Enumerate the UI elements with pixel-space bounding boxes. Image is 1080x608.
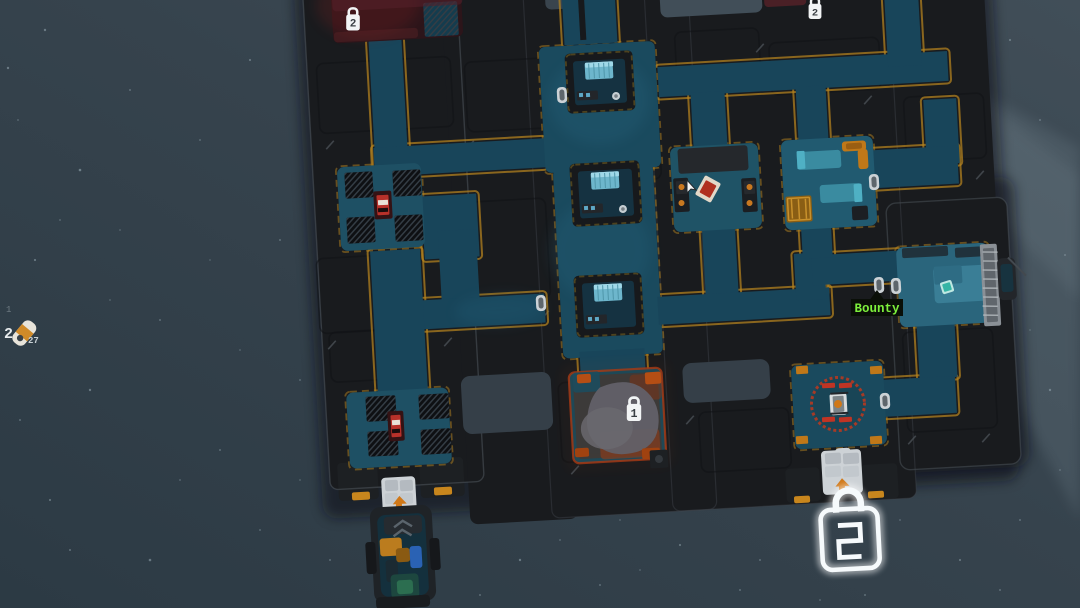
svg-text:2: 2 xyxy=(350,19,357,31)
svg-text:1: 1 xyxy=(6,305,11,315)
svg-text:2: 2 xyxy=(812,7,818,19)
svg-text:Bounty: Bounty xyxy=(854,302,900,316)
svg-text:2: 2 xyxy=(4,326,13,343)
svg-text:27: 27 xyxy=(28,336,39,346)
svg-text:1: 1 xyxy=(630,407,637,421)
